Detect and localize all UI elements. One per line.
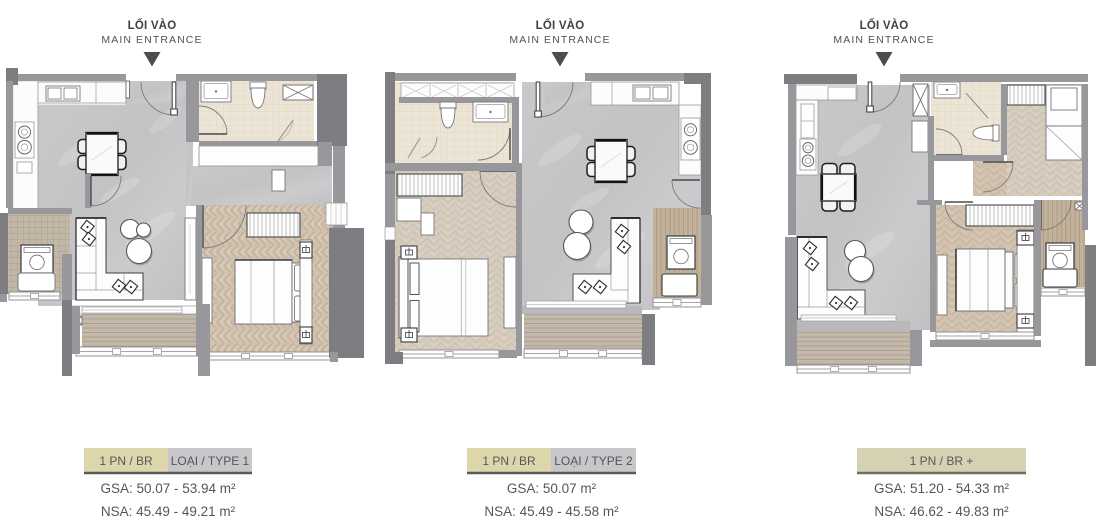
- svg-text:LỐI VÀO: LỐI VÀO: [128, 18, 177, 32]
- svg-text:LOẠI / TYPE 2: LOẠI / TYPE 2: [554, 454, 633, 468]
- svg-text:LOẠI / TYPE 1: LOẠI / TYPE 1: [171, 454, 250, 468]
- svg-text:MAIN ENTRANCE: MAIN ENTRANCE: [509, 34, 610, 46]
- svg-text:1 PN / BR +: 1 PN / BR +: [910, 454, 974, 468]
- svg-text:MAIN ENTRANCE: MAIN ENTRANCE: [101, 34, 202, 46]
- svg-text:GSA: 51.20 - 54.33 m²: GSA: 51.20 - 54.33 m²: [874, 481, 1010, 496]
- svg-text:GSA: 50.07 m²: GSA: 50.07 m²: [507, 481, 597, 496]
- svg-text:LỐI VÀO: LỐI VÀO: [536, 18, 585, 32]
- svg-text:NSA: 45.49 - 49.21 m²: NSA: 45.49 - 49.21 m²: [101, 504, 236, 519]
- svg-text:MAIN ENTRANCE: MAIN ENTRANCE: [833, 34, 934, 46]
- svg-text:NSA: 46.62 - 49.83 m²: NSA: 46.62 - 49.83 m²: [874, 504, 1009, 519]
- svg-text:1 PN / BR: 1 PN / BR: [99, 454, 153, 468]
- svg-text:GSA: 50.07 - 53.94 m²: GSA: 50.07 - 53.94 m²: [100, 481, 236, 496]
- svg-text:NSA: 45.49 - 45.58 m²: NSA: 45.49 - 45.58 m²: [484, 504, 619, 519]
- svg-text:LỐI VÀO: LỐI VÀO: [860, 18, 909, 32]
- svg-text:1 PN / BR: 1 PN / BR: [482, 454, 536, 468]
